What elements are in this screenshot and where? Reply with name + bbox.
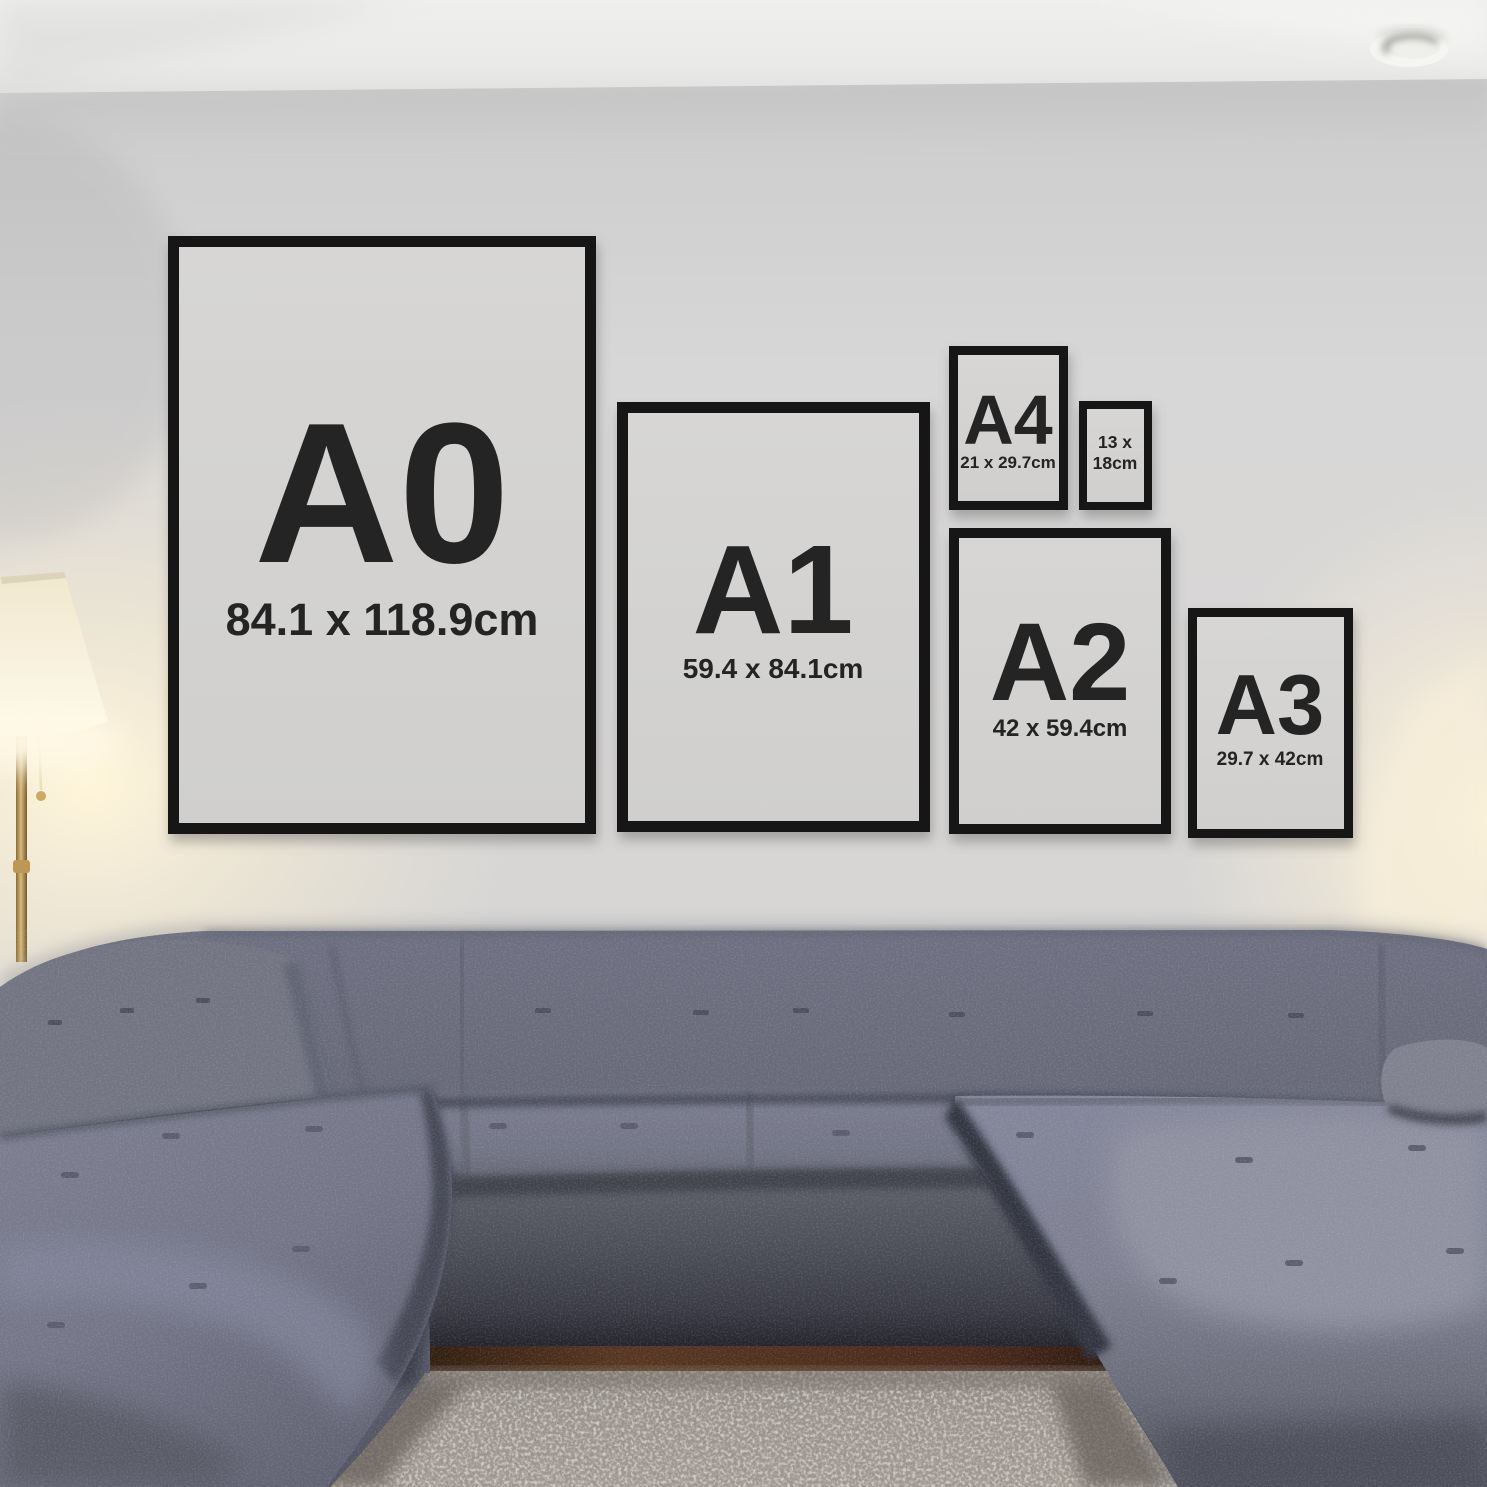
svg-text:A3: A3: [1216, 658, 1325, 753]
svg-text:21 x 29.7cm: 21 x 29.7cm: [960, 453, 1055, 472]
svg-text:A2: A2: [990, 601, 1131, 724]
svg-text:29.7 x 42cm: 29.7 x 42cm: [1217, 749, 1324, 770]
svg-text:18cm: 18cm: [1093, 453, 1138, 473]
svg-text:A4: A4: [963, 381, 1053, 459]
svg-text:13 x: 13 x: [1098, 432, 1132, 452]
svg-text:A0: A0: [254, 382, 510, 605]
svg-text:42 x 59.4cm: 42 x 59.4cm: [993, 715, 1128, 742]
svg-text:59.4 x 84.1cm: 59.4 x 84.1cm: [683, 653, 864, 684]
svg-text:A1: A1: [692, 519, 853, 660]
svg-text:84.1 x 118.9cm: 84.1 x 118.9cm: [226, 594, 539, 645]
